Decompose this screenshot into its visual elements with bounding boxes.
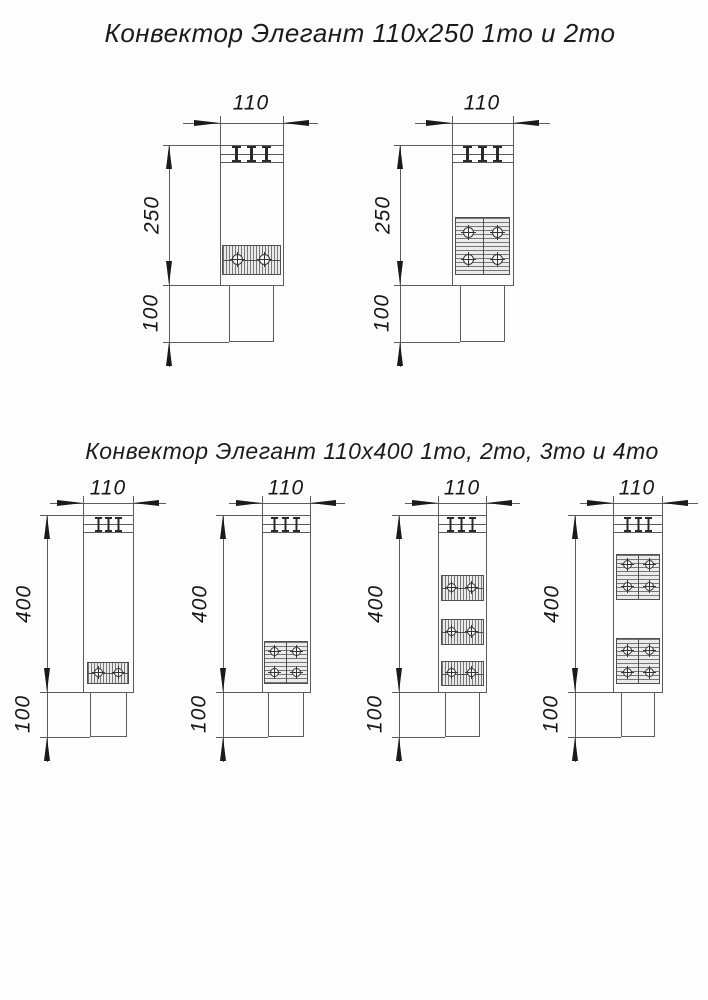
base-duct	[460, 285, 505, 342]
grille-line	[83, 532, 133, 533]
tube	[292, 647, 301, 656]
grille-bracket	[463, 146, 472, 162]
grille-bracket	[493, 146, 502, 162]
extension-line	[438, 496, 439, 515]
dim-arrow-right	[57, 500, 83, 506]
dim-arrow-up	[44, 737, 50, 761]
height-dim-label: 400	[190, 585, 211, 623]
dim-arrow-up	[396, 515, 402, 539]
dim-arrow-right	[426, 120, 452, 126]
dim-arrow-right	[587, 500, 613, 506]
technical-drawing: Конвектор Элегант 110х250 1то и 2то Конв…	[0, 0, 708, 1000]
height-dim-label: 250	[142, 196, 163, 234]
dim-arrow-up	[397, 145, 403, 169]
base-duct	[445, 692, 480, 737]
tube	[232, 254, 243, 265]
tube	[623, 668, 632, 677]
grille-bracket	[447, 517, 454, 532]
base-duct	[268, 692, 304, 737]
width-dim-label: 110	[268, 478, 304, 499]
dim-arrow-left	[513, 120, 539, 126]
heat-exchanger-block	[616, 554, 660, 600]
height-dim-line	[47, 515, 48, 762]
tube	[447, 668, 456, 677]
dim-arrow-up	[572, 515, 578, 539]
grille-bracket	[478, 146, 487, 162]
grille-bracket	[458, 517, 465, 532]
heat-exchanger-block	[455, 217, 510, 275]
dim-arrow-down	[220, 668, 226, 692]
tube	[259, 254, 270, 265]
dim-arrow-left	[486, 500, 512, 506]
grille-bracket	[262, 146, 271, 162]
dim-arrow-up	[396, 737, 402, 761]
exchanger-divider	[483, 218, 484, 274]
grille-bracket	[105, 517, 112, 532]
width-dim-label: 110	[464, 93, 500, 114]
dim-arrow-down	[396, 668, 402, 692]
grille-line	[262, 532, 310, 533]
tube	[463, 227, 474, 238]
extension-line	[83, 496, 84, 515]
tube	[114, 668, 123, 677]
height-dim-label: 400	[542, 585, 563, 623]
base-duct	[229, 285, 274, 342]
tube	[467, 583, 476, 592]
dim-arrow-up	[166, 145, 172, 169]
grille-line	[438, 532, 486, 533]
extension-line	[392, 692, 438, 693]
tube	[467, 668, 476, 677]
extension-line	[613, 496, 614, 515]
heat-exchanger-block	[222, 245, 281, 275]
dim-arrow-up	[397, 342, 403, 366]
width-dim-label: 110	[233, 93, 269, 114]
width-dim-label: 110	[444, 478, 480, 499]
base-dim-label: 100	[189, 695, 210, 733]
section-title-110x250: Конвектор Элегант 110х250 1то и 2то	[104, 20, 615, 46]
grille-bracket	[115, 517, 122, 532]
dim-arrow-down	[397, 261, 403, 285]
base-dim-label: 100	[541, 695, 562, 733]
dim-arrow-left	[310, 500, 336, 506]
base-dim-label: 100	[13, 695, 34, 733]
extension-line	[662, 496, 663, 515]
tube	[94, 668, 103, 677]
extension-line	[310, 496, 311, 515]
dim-arrow-left	[662, 500, 688, 506]
dim-arrow-right	[236, 500, 262, 506]
grille-bracket	[232, 146, 241, 162]
grille-bracket	[247, 146, 256, 162]
height-dim-line	[223, 515, 224, 762]
heat-exchanger-block	[616, 638, 660, 684]
dim-arrow-up	[572, 737, 578, 761]
height-dim-line	[169, 145, 170, 367]
tube	[292, 668, 301, 677]
base-dim-label: 100	[372, 294, 393, 332]
dim-arrow-down	[166, 261, 172, 285]
tube	[645, 668, 654, 677]
grille-bracket	[645, 517, 652, 532]
tube	[463, 254, 474, 265]
grille-line	[613, 532, 662, 533]
tube	[623, 582, 632, 591]
extension-line	[283, 116, 284, 145]
base-dim-label: 100	[365, 695, 386, 733]
dim-arrow-left	[133, 500, 159, 506]
height-dim-line	[399, 515, 400, 762]
extension-line	[568, 692, 613, 693]
extension-line	[133, 496, 134, 515]
tube	[492, 227, 503, 238]
extension-line	[220, 116, 221, 145]
tube	[270, 668, 279, 677]
dim-arrow-right	[194, 120, 220, 126]
section-title-110x400: Конвектор Элегант 110х400 1то, 2то, 3то …	[85, 440, 659, 463]
extension-line	[163, 342, 229, 343]
grille-bracket	[271, 517, 278, 532]
height-dim-label: 250	[373, 196, 394, 234]
dim-arrow-up	[220, 515, 226, 539]
extension-line	[394, 342, 460, 343]
tube	[270, 647, 279, 656]
width-dim-label: 110	[90, 478, 126, 499]
dim-arrow-up	[166, 342, 172, 366]
grille-bracket	[95, 517, 102, 532]
dim-arrow-up	[220, 737, 226, 761]
height-dim-line	[400, 145, 401, 367]
dim-arrow-left	[283, 120, 309, 126]
tube	[623, 646, 632, 655]
extension-line	[452, 116, 453, 145]
base-dim-label: 100	[141, 294, 162, 332]
exchanger-divider	[638, 555, 639, 599]
tube	[645, 646, 654, 655]
tube	[645, 560, 654, 569]
exchanger-divider	[286, 642, 287, 683]
exchanger-divider	[638, 639, 639, 683]
height-dim-line	[575, 515, 576, 762]
tube	[467, 627, 476, 636]
tube	[645, 582, 654, 591]
extension-line	[163, 285, 220, 286]
grille-bracket	[282, 517, 289, 532]
dim-arrow-down	[572, 668, 578, 692]
dim-arrow-up	[44, 515, 50, 539]
extension-line	[394, 285, 452, 286]
tube	[492, 254, 503, 265]
height-dim-label: 400	[14, 585, 35, 623]
grille-bracket	[635, 517, 642, 532]
grille-bracket	[624, 517, 631, 532]
extension-line	[513, 116, 514, 145]
tube	[447, 583, 456, 592]
grille-bracket	[469, 517, 476, 532]
tube	[623, 560, 632, 569]
width-dim-label: 110	[619, 478, 655, 499]
height-dim-label: 400	[366, 585, 387, 623]
base-duct	[90, 692, 127, 737]
tube	[447, 627, 456, 636]
base-duct	[621, 692, 655, 737]
dim-arrow-right	[412, 500, 438, 506]
grille-line	[220, 162, 283, 163]
extension-line	[262, 496, 263, 515]
extension-line	[40, 692, 83, 693]
grille-bracket	[293, 517, 300, 532]
dim-arrow-down	[44, 668, 50, 692]
extension-line	[486, 496, 487, 515]
extension-line	[216, 692, 262, 693]
grille-line	[452, 162, 513, 163]
